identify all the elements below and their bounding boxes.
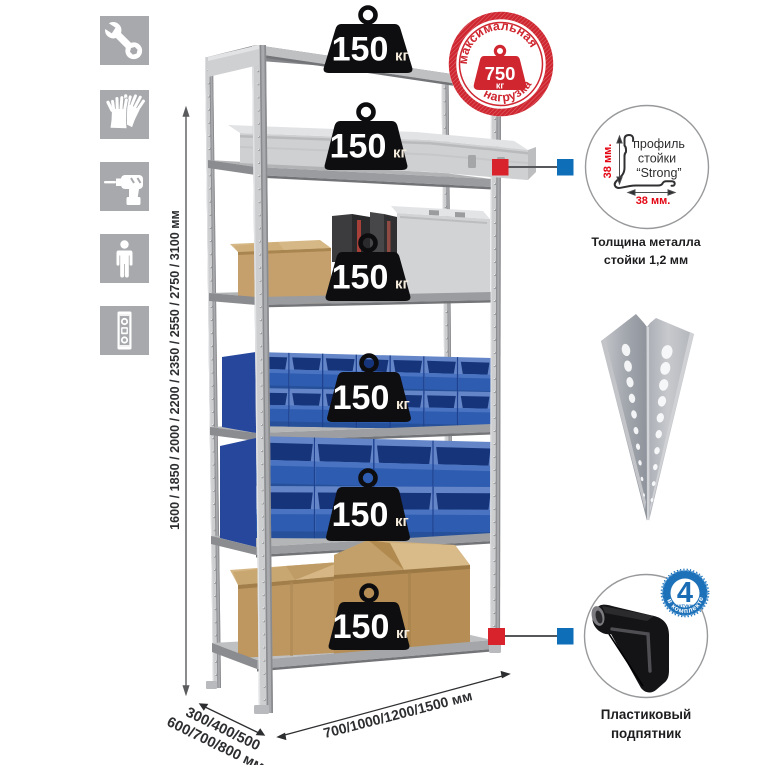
svg-text:150: 150 bbox=[330, 128, 387, 166]
svg-text:стойки: стойки bbox=[638, 152, 676, 166]
svg-text:Толщина металла: Толщина металла bbox=[591, 235, 700, 249]
svg-text:профиль: профиль bbox=[633, 137, 685, 151]
svg-text:Пластиковый: Пластиковый bbox=[601, 707, 691, 722]
svg-text:150: 150 bbox=[332, 496, 389, 534]
svg-text:подпятник: подпятник bbox=[611, 726, 681, 741]
svg-text:кг: кг bbox=[395, 513, 409, 530]
svg-text:кг: кг bbox=[395, 48, 409, 65]
svg-text:кг: кг bbox=[496, 81, 505, 91]
svg-text:150: 150 bbox=[332, 259, 389, 297]
svg-text:38 мм.: 38 мм. bbox=[636, 195, 671, 207]
svg-text:кг: кг bbox=[395, 276, 409, 293]
svg-text:38 мм.: 38 мм. bbox=[602, 144, 614, 179]
svg-text:1600 / 1850 / 2000 / 2200 / 23: 1600 / 1850 / 2000 / 2200 / 2350 / 2550 … bbox=[168, 210, 182, 530]
svg-text:стойки 1,2 мм: стойки 1,2 мм bbox=[604, 253, 688, 267]
svg-text:150: 150 bbox=[333, 608, 390, 646]
svg-text:“Strong”: “Strong” bbox=[636, 166, 681, 180]
svg-text:150: 150 bbox=[332, 31, 389, 69]
svg-text:кг: кг bbox=[396, 625, 410, 642]
svg-text:кг: кг bbox=[396, 396, 410, 413]
svg-text:150: 150 bbox=[333, 379, 390, 417]
svg-text:кг: кг bbox=[393, 145, 407, 162]
